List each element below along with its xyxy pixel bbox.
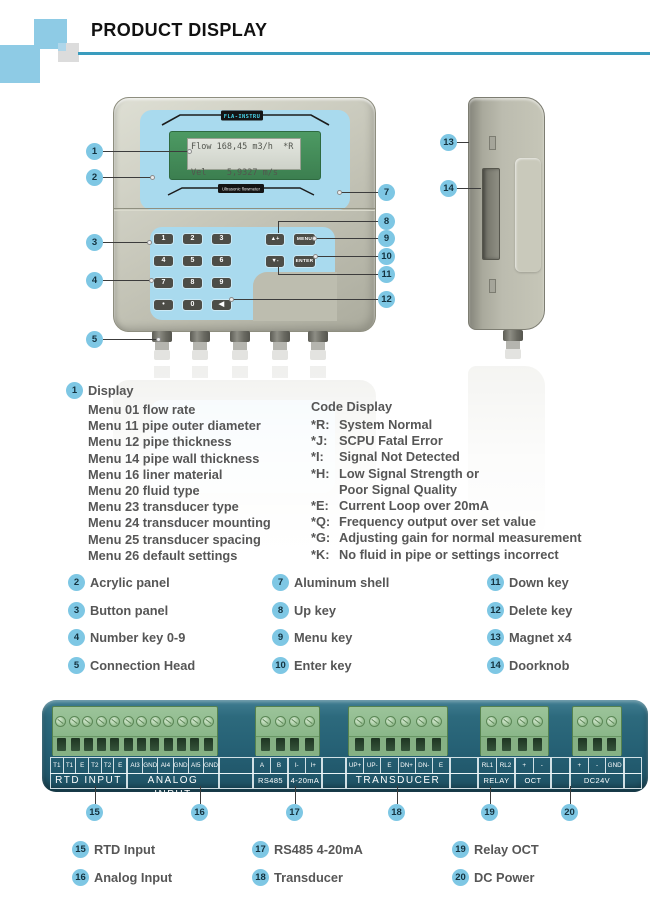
number-key: 7 bbox=[154, 278, 173, 288]
terminal-cells-rs485: AB bbox=[253, 757, 288, 774]
menu-item: Menu 11 pipe outer diameter bbox=[88, 418, 271, 434]
case-seam-line bbox=[114, 208, 375, 209]
terminal-screw bbox=[190, 716, 201, 727]
leader-line-7 bbox=[340, 192, 378, 193]
terminal-cell: GND bbox=[204, 758, 218, 773]
leader-line-15 bbox=[95, 786, 96, 804]
terminal-screw bbox=[96, 716, 107, 727]
terminal-cells-transducer: UP+UP-EDN+DN-E bbox=[346, 757, 450, 774]
legend-item: 10 Enter key bbox=[272, 657, 487, 674]
terminal-cell: GND bbox=[174, 758, 189, 773]
terminal-legend: 15 RTD Input 16 Analog Input 17 RS485 4-… bbox=[72, 841, 539, 897]
terminal-cells-oct: +- bbox=[515, 757, 551, 774]
legend-label: Analog Input bbox=[94, 870, 172, 885]
code-symbol: *I: bbox=[311, 449, 339, 465]
cable-gland bbox=[503, 330, 523, 359]
terminal-cell: A bbox=[254, 758, 271, 773]
leader-line-18 bbox=[397, 786, 398, 804]
legend-item: 5 Connection Head bbox=[68, 657, 272, 674]
screw-row bbox=[256, 707, 319, 736]
leader-line-20 bbox=[570, 786, 571, 804]
legend-label: Menu key bbox=[294, 630, 352, 645]
wire-hole bbox=[518, 738, 527, 751]
section-relay: RELAY bbox=[478, 773, 515, 789]
hole-row bbox=[481, 736, 548, 756]
terminal-cell: RL2 bbox=[497, 758, 514, 773]
code-description: System Normal bbox=[339, 417, 432, 433]
number-key: 4 bbox=[154, 256, 173, 266]
callout-badge-4: 4 bbox=[86, 272, 103, 289]
terminal-cell: DN- bbox=[416, 758, 433, 773]
terminal-screw bbox=[577, 716, 588, 727]
code-symbol: *E: bbox=[311, 498, 339, 514]
leader-line-5 bbox=[103, 339, 158, 340]
wire-hole bbox=[204, 738, 213, 751]
hole-row bbox=[349, 736, 447, 756]
screw-row bbox=[481, 707, 548, 736]
terminal-screw bbox=[163, 716, 174, 727]
section-rtd-input: RTD INPUT bbox=[50, 773, 127, 789]
wire-hole bbox=[401, 738, 410, 751]
screw-row bbox=[53, 707, 217, 736]
code-description: Low Signal Strength or bbox=[339, 466, 479, 482]
terminal-screw bbox=[354, 716, 365, 727]
cable-gland bbox=[230, 331, 250, 360]
terminal-cells-spacer bbox=[219, 757, 253, 774]
leader-line-16 bbox=[200, 786, 201, 804]
leader-line-10 bbox=[316, 256, 378, 257]
terminal-cell: E bbox=[76, 758, 89, 773]
code-symbol: *G: bbox=[311, 530, 339, 546]
terminal-cell: UP+ bbox=[347, 758, 364, 773]
code-item: *H: Low Signal Strength or bbox=[311, 466, 581, 482]
legend-badge: 4 bbox=[68, 629, 85, 646]
terminal-screw bbox=[532, 716, 543, 727]
terminal-cell: T1 bbox=[51, 758, 64, 773]
screw-row bbox=[573, 707, 621, 736]
legend-item: 3 Button panel bbox=[68, 602, 272, 619]
wire-hole bbox=[84, 738, 93, 751]
lcd-display: Flow 168,45 m3/h *R Vel 5,9327 m/s bbox=[169, 131, 321, 180]
leader-dot bbox=[149, 278, 154, 283]
wire-hole bbox=[386, 738, 395, 751]
code-symbol: *K: bbox=[311, 547, 339, 563]
flowmeter-side-view bbox=[468, 97, 545, 330]
terminal-cell: AI5 bbox=[189, 758, 204, 773]
legend-badge: 16 bbox=[72, 869, 89, 886]
legend-badge: 20 bbox=[452, 869, 469, 886]
legend-item: 17 RS485 4-20mA bbox=[252, 841, 452, 858]
terminal-cell: AI3 bbox=[128, 758, 143, 773]
legend-label: Connection Head bbox=[90, 658, 195, 673]
code-description: Adjusting gain for normal measurement bbox=[339, 530, 581, 546]
terminal-screw bbox=[431, 716, 442, 727]
terminal-cell: B bbox=[271, 758, 287, 773]
terminal-cells-spacer bbox=[322, 757, 346, 774]
code-item: *R: System Normal bbox=[311, 417, 581, 433]
hole-row bbox=[573, 736, 621, 756]
wire-hole bbox=[71, 738, 80, 751]
legend-badge: 7 bbox=[272, 574, 289, 591]
leader-dot bbox=[187, 149, 192, 154]
terminal-cells-rtd: T1T1ET2T2E bbox=[50, 757, 127, 774]
menu-item: Menu 24 transducer mounting bbox=[88, 515, 271, 531]
product-display-page: PRODUCT DISPLAY FLA-INSTRU Ultrasonic fl… bbox=[0, 0, 650, 919]
legend-label: RTD Input bbox=[94, 842, 155, 857]
code-symbol: *Q: bbox=[311, 514, 339, 530]
terminal-cell: GND bbox=[143, 758, 158, 773]
legend-badge: 8 bbox=[272, 602, 289, 619]
legend-label: RS485 4-20mA bbox=[274, 842, 363, 857]
leader-line-11b bbox=[278, 267, 279, 274]
leader-line-13 bbox=[457, 142, 469, 143]
callout-badge-9: 9 bbox=[378, 230, 395, 247]
terminal-cells-spacer bbox=[624, 757, 642, 774]
terminal-screw bbox=[606, 716, 617, 727]
callout-badge-8: 8 bbox=[378, 213, 395, 230]
code-display-heading: Code Display bbox=[311, 399, 581, 414]
callout-badge-16: 16 bbox=[191, 804, 208, 821]
callout-badge-19: 19 bbox=[481, 804, 498, 821]
wire-hole bbox=[432, 738, 441, 751]
callout-badge-12: 12 bbox=[378, 291, 395, 308]
callout-badge-15: 15 bbox=[86, 804, 103, 821]
legend-label: Aluminum shell bbox=[294, 575, 389, 590]
leader-line-2 bbox=[103, 177, 152, 178]
number-keypad: 123456789•0◀ bbox=[154, 234, 234, 310]
number-key: ◀ bbox=[212, 300, 231, 310]
section-rs485: RS485 bbox=[253, 773, 288, 789]
code-symbol: *R: bbox=[311, 417, 339, 433]
code-description: SCPU Fatal Error bbox=[339, 433, 443, 449]
leader-line-9 bbox=[315, 238, 378, 239]
legend-item: 11 Down key bbox=[487, 574, 572, 591]
callout-badge-2: 2 bbox=[86, 169, 103, 186]
legend-item: 20 DC Power bbox=[452, 869, 539, 886]
legend-badge: 12 bbox=[487, 602, 504, 619]
code-description: No fluid in pipe or settings incorrect bbox=[339, 547, 559, 563]
terminal-cell: T2 bbox=[102, 758, 115, 773]
code-item: *E: Current Loop over 20mA bbox=[311, 498, 581, 514]
brand-plate-label: FLA-INSTRU bbox=[224, 114, 260, 120]
code-description: Poor Signal Quality bbox=[339, 482, 457, 498]
lcd-line-1: Flow 168,45 m3/h *R bbox=[191, 142, 293, 152]
legend-item: 13 Magnet x4 bbox=[487, 629, 572, 646]
terminal-screw bbox=[109, 716, 120, 727]
terminal-screw bbox=[304, 716, 315, 727]
decor-square-blue-2 bbox=[0, 45, 40, 83]
leader-line-17 bbox=[295, 786, 296, 804]
legend-badge: 2 bbox=[68, 574, 85, 591]
section-analog-input: ANALOG INPUT bbox=[127, 773, 219, 789]
legend-label: Transducer bbox=[274, 870, 343, 885]
menu-item: Menu 25 transducer spacing bbox=[88, 532, 271, 548]
code-item: *J: SCPU Fatal Error bbox=[311, 433, 581, 449]
terminal-cell: UP- bbox=[364, 758, 381, 773]
legend-badge: 19 bbox=[452, 841, 469, 858]
leader-dot bbox=[229, 297, 234, 302]
legend-label: Magnet x4 bbox=[509, 630, 572, 645]
callout-badge-5: 5 bbox=[86, 331, 103, 348]
legend-label: Number key 0-9 bbox=[90, 630, 185, 645]
button-panel-notch bbox=[253, 272, 337, 321]
menu-item: Menu 20 fluid type bbox=[88, 483, 271, 499]
terminal-screw bbox=[592, 716, 603, 727]
terminal-cells-dc24v: +-GND bbox=[570, 757, 624, 774]
number-key: 6 bbox=[212, 256, 231, 266]
legend-item: 9 Menu key bbox=[272, 629, 487, 646]
code-item: *I: Signal Not Detected bbox=[311, 449, 581, 465]
screw-row bbox=[349, 707, 447, 736]
callout-badge-14: 14 bbox=[440, 180, 457, 197]
case-seam-highlight bbox=[114, 210, 375, 211]
terminal-screw bbox=[385, 716, 396, 727]
legend-label: Relay OCT bbox=[474, 842, 539, 857]
callout-badge-7: 7 bbox=[378, 184, 395, 201]
legend-badge: 3 bbox=[68, 602, 85, 619]
leader-line-19 bbox=[490, 786, 491, 804]
wire-hole bbox=[416, 738, 425, 751]
section-spacer bbox=[551, 773, 570, 789]
terminal-cells-relay: RL1RL2 bbox=[478, 757, 515, 774]
terminal-cell: I- bbox=[289, 758, 306, 773]
terminal-screw bbox=[486, 716, 497, 727]
acrylic-panel: FLA-INSTRU Ultrasonic flowmeter Flow 168… bbox=[140, 110, 350, 210]
code-item: *K: No fluid in pipe or settings incorre… bbox=[311, 547, 581, 563]
callout-badge-11: 11 bbox=[378, 266, 395, 283]
code-symbol: *H: bbox=[311, 466, 339, 482]
terminal-strip-dc24v bbox=[572, 706, 622, 756]
callout-badge-17: 17 bbox=[286, 804, 303, 821]
menu-item: Menu 01 flow rate bbox=[88, 402, 271, 418]
lcd-screen: Flow 168,45 m3/h *R Vel 5,9327 m/s bbox=[187, 138, 301, 170]
legend-item: 8 Up key bbox=[272, 602, 487, 619]
leader-line-8 bbox=[278, 221, 378, 222]
terminal-cell: DN+ bbox=[399, 758, 416, 773]
callout-badge-13: 13 bbox=[440, 134, 457, 151]
menu-item: Menu 26 default settings bbox=[88, 548, 271, 564]
legend-badge: 10 bbox=[272, 657, 289, 674]
up-key: ▲+ bbox=[266, 234, 284, 245]
magnet-slot bbox=[489, 136, 496, 150]
terminal-cell: RL1 bbox=[479, 758, 497, 773]
lcd-line-2: Vel 5,9327 m/s bbox=[191, 168, 278, 178]
wire-hole bbox=[137, 738, 146, 751]
terminal-screw bbox=[69, 716, 80, 727]
legend-label: DC Power bbox=[474, 870, 534, 885]
legend-item: 2 Acrylic panel bbox=[68, 574, 272, 591]
terminal-strip-transducer bbox=[348, 706, 448, 756]
terminal-strip-rs485 bbox=[255, 706, 320, 756]
terminal-cell: + bbox=[516, 758, 534, 773]
display-info-block: 1 Display Menu 01 flow rateMenu 11 pipe … bbox=[66, 381, 271, 564]
display-info-heading: Display bbox=[88, 383, 134, 398]
legend-badge: 11 bbox=[487, 574, 504, 591]
code-description: Current Loop over 20mA bbox=[339, 498, 489, 514]
wire-hole bbox=[533, 738, 542, 751]
menu-item: Menu 23 transducer type bbox=[88, 499, 271, 515]
code-item: Poor Signal Quality bbox=[311, 482, 581, 498]
terminal-screw bbox=[517, 716, 528, 727]
wire-hole bbox=[124, 738, 133, 751]
terminal-cell: GND bbox=[606, 758, 623, 773]
legend-label: Enter key bbox=[294, 658, 352, 673]
terminal-cell: T2 bbox=[89, 758, 102, 773]
legend-label: Doorknob bbox=[509, 658, 569, 673]
wire-hole bbox=[261, 738, 270, 751]
legend-item: 4 Number key 0-9 bbox=[68, 629, 272, 646]
leader-dot bbox=[313, 254, 318, 259]
menu-item: Menu 14 pipe wall thickness bbox=[88, 451, 271, 467]
number-key: 0 bbox=[183, 300, 202, 310]
decor-square-blue-small bbox=[58, 43, 66, 51]
leader-dot bbox=[337, 190, 342, 195]
leader-line-1 bbox=[103, 151, 189, 152]
terminal-cell: AI4 bbox=[158, 758, 173, 773]
wire-hole bbox=[290, 738, 299, 751]
cable-gland bbox=[308, 331, 328, 360]
code-item: *Q: Frequency output over set value bbox=[311, 514, 581, 530]
callout-badge-10: 10 bbox=[378, 248, 395, 265]
wire-hole bbox=[57, 738, 66, 751]
terminal-cells-analog: AI3GNDAI4GNDAI5GND bbox=[127, 757, 219, 774]
section-transducer: TRANSDUCER bbox=[346, 773, 450, 789]
number-key: 3 bbox=[212, 234, 231, 244]
menu-item: Menu 12 pipe thickness bbox=[88, 434, 271, 450]
code-symbol: *J: bbox=[311, 433, 339, 449]
section-spacer bbox=[322, 773, 346, 789]
code-list: *R: System Normal *J: SCPU Fatal Error *… bbox=[311, 417, 581, 563]
wire-hole bbox=[305, 738, 314, 751]
code-item: *G: Adjusting gain for normal measuremen… bbox=[311, 530, 581, 546]
terminal-screw bbox=[260, 716, 271, 727]
terminal-cell: - bbox=[534, 758, 551, 773]
legend-badge: 14 bbox=[487, 657, 504, 674]
terminal-block-photo: T1T1ET2T2E AI3GNDAI4GNDAI5GND AB I-I+ UP… bbox=[42, 700, 648, 792]
legend-item: 18 Transducer bbox=[252, 869, 452, 886]
terminal-screw bbox=[136, 716, 147, 727]
leader-line-4 bbox=[103, 280, 151, 281]
code-description: Frequency output over set value bbox=[339, 514, 536, 530]
terminal-screw bbox=[203, 716, 214, 727]
wire-hole bbox=[190, 738, 199, 751]
legend-label: Acrylic panel bbox=[90, 575, 170, 590]
terminal-cells-spacer bbox=[551, 757, 570, 774]
flowmeter-front-view: FLA-INSTRU Ultrasonic flowmeter Flow 168… bbox=[113, 97, 376, 332]
legend-item: 19 Relay OCT bbox=[452, 841, 539, 858]
terminal-cell: E bbox=[381, 758, 398, 773]
number-key: 9 bbox=[212, 278, 231, 288]
callout-badge-20: 20 bbox=[561, 804, 578, 821]
legend-label: Button panel bbox=[90, 603, 168, 618]
number-key: 2 bbox=[183, 234, 202, 244]
terminal-strip-rtd-analog bbox=[52, 706, 218, 756]
down-key: ▼- bbox=[266, 256, 284, 267]
section-spacer bbox=[450, 773, 478, 789]
terminal-screw bbox=[150, 716, 161, 727]
wire-hole bbox=[110, 738, 119, 751]
legend-badge: 15 bbox=[72, 841, 89, 858]
magnet-slot bbox=[489, 279, 496, 293]
hole-row bbox=[53, 736, 217, 756]
legend-badge: 9 bbox=[272, 629, 289, 646]
section-dc24v: DC24V bbox=[570, 773, 624, 789]
legend-label: Delete key bbox=[509, 603, 572, 618]
section-420ma: 4-20mA bbox=[288, 773, 322, 789]
terminal-screw bbox=[275, 716, 286, 727]
code-symbol bbox=[311, 482, 339, 498]
terminal-cell: E bbox=[433, 758, 449, 773]
legend-label: Down key bbox=[509, 575, 569, 590]
legend-item: 14 Doorknob bbox=[487, 657, 572, 674]
terminal-screw bbox=[400, 716, 411, 727]
terminal-cell: T1 bbox=[64, 758, 77, 773]
terminal-screw bbox=[369, 716, 380, 727]
wire-hole bbox=[276, 738, 285, 751]
terminal-cells-spacer bbox=[450, 757, 478, 774]
wire-hole bbox=[487, 738, 496, 751]
wire-hole bbox=[371, 738, 380, 751]
leader-line-11 bbox=[278, 274, 378, 275]
wire-hole bbox=[97, 738, 106, 751]
terminal-screw bbox=[82, 716, 93, 727]
menu-item: Menu 16 liner material bbox=[88, 467, 271, 483]
title-underline bbox=[78, 52, 650, 55]
terminal-screw bbox=[501, 716, 512, 727]
terminal-strip-relay-oct bbox=[480, 706, 549, 756]
page-title: PRODUCT DISPLAY bbox=[91, 20, 267, 41]
legend-badge: 17 bbox=[252, 841, 269, 858]
callout-badge-18: 18 bbox=[388, 804, 405, 821]
legend-label: Up key bbox=[294, 603, 336, 618]
side-panel-inset bbox=[515, 158, 541, 272]
wire-hole bbox=[578, 738, 587, 751]
code-display-block: Code Display *R: System Normal *J: SCPU … bbox=[311, 399, 581, 563]
legend-badge: 18 bbox=[252, 869, 269, 886]
terminal-cell: - bbox=[589, 758, 607, 773]
legend-item: 12 Delete key bbox=[487, 602, 572, 619]
legend-badge: 13 bbox=[487, 629, 504, 646]
type-plate-label: Ultrasonic flowmeter bbox=[222, 187, 261, 192]
callout-badge-1: 1 bbox=[86, 143, 103, 160]
terminal-cell: I+ bbox=[306, 758, 322, 773]
leader-dot bbox=[312, 236, 317, 241]
cable-gland bbox=[270, 331, 290, 360]
leader-line-3 bbox=[103, 242, 149, 243]
terminal-screw bbox=[177, 716, 188, 727]
doorknob-handle bbox=[482, 168, 500, 260]
legend-item: 15 RTD Input bbox=[72, 841, 252, 858]
number-key: 1 bbox=[154, 234, 173, 244]
legend-item: 16 Analog Input bbox=[72, 869, 252, 886]
wire-hole bbox=[177, 738, 186, 751]
leader-line-8b bbox=[278, 221, 279, 233]
terminal-screw bbox=[55, 716, 66, 727]
enter-key: ENTER bbox=[294, 256, 315, 267]
leader-dot bbox=[156, 337, 161, 342]
hole-row bbox=[256, 736, 319, 756]
cable-gland bbox=[152, 331, 172, 360]
code-description: Signal Not Detected bbox=[339, 449, 460, 465]
menu-list: Menu 01 flow rateMenu 11 pipe outer diam… bbox=[88, 402, 271, 564]
legend-item: 7 Aluminum shell bbox=[272, 574, 487, 591]
display-info-badge: 1 bbox=[66, 382, 83, 399]
terminal-cells-420ma: I-I+ bbox=[288, 757, 322, 774]
wire-hole bbox=[355, 738, 364, 751]
section-oct: OCT bbox=[515, 773, 551, 789]
section-spacer bbox=[624, 773, 642, 789]
terminal-cell: + bbox=[571, 758, 589, 773]
